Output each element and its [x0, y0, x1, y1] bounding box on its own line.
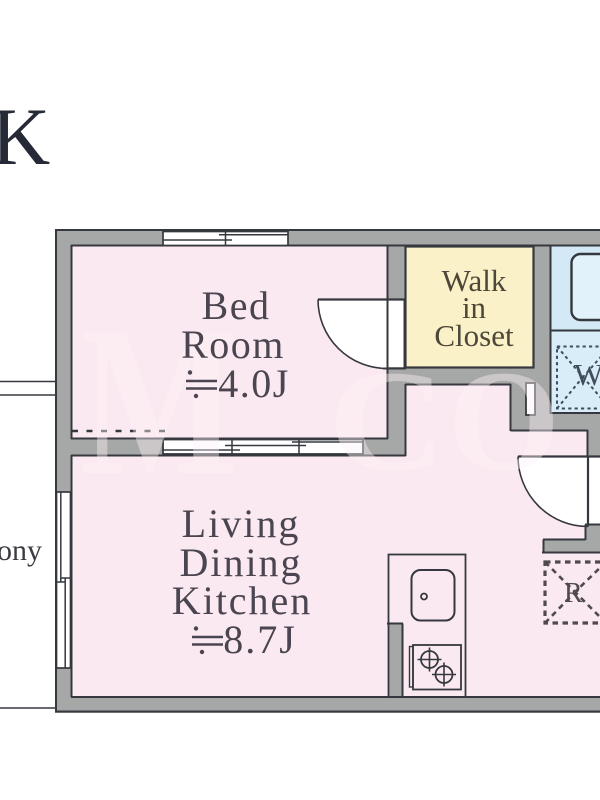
svg-text:4.0J: 4.0J — [218, 361, 290, 406]
svg-text:C: C — [328, 342, 446, 501]
svg-text:K: K — [0, 91, 50, 182]
svg-text:R: R — [564, 578, 583, 609]
svg-text:Closet: Closet — [434, 318, 514, 353]
svg-text:8.7J: 8.7J — [223, 617, 297, 662]
svg-text:Balcony: Balcony — [0, 534, 42, 567]
svg-text:W: W — [574, 357, 600, 392]
svg-text:O: O — [448, 342, 560, 501]
